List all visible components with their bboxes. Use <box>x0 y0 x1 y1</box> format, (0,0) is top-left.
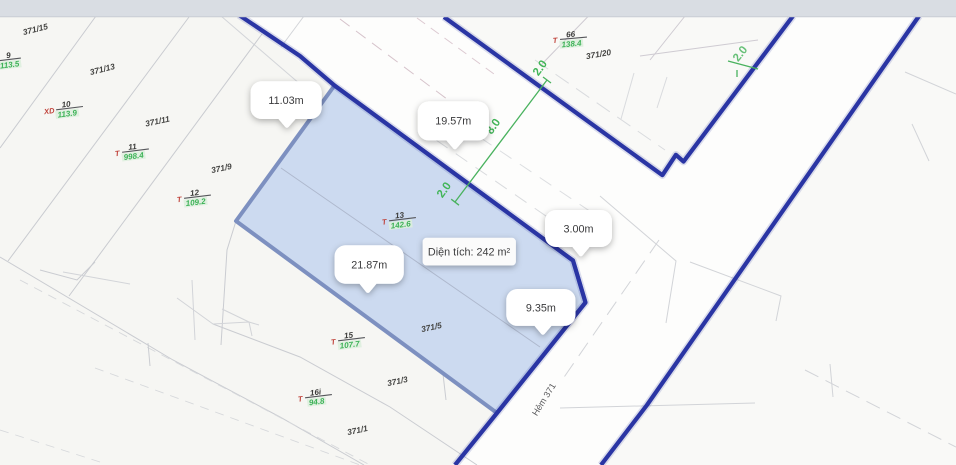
svg-text:11.03m: 11.03m <box>268 95 303 107</box>
svg-text:19.57m: 19.57m <box>435 116 471 128</box>
svg-text:XD: XD <box>43 106 56 116</box>
svg-text:138.4: 138.4 <box>561 39 582 50</box>
svg-text:3.00m: 3.00m <box>563 223 593 235</box>
svg-text:21.87m: 21.87m <box>351 259 387 271</box>
svg-text:9.35m: 9.35m <box>526 302 556 314</box>
svg-text:Diện tích: 242 m²: Diện tích: 242 m² <box>428 246 511 258</box>
